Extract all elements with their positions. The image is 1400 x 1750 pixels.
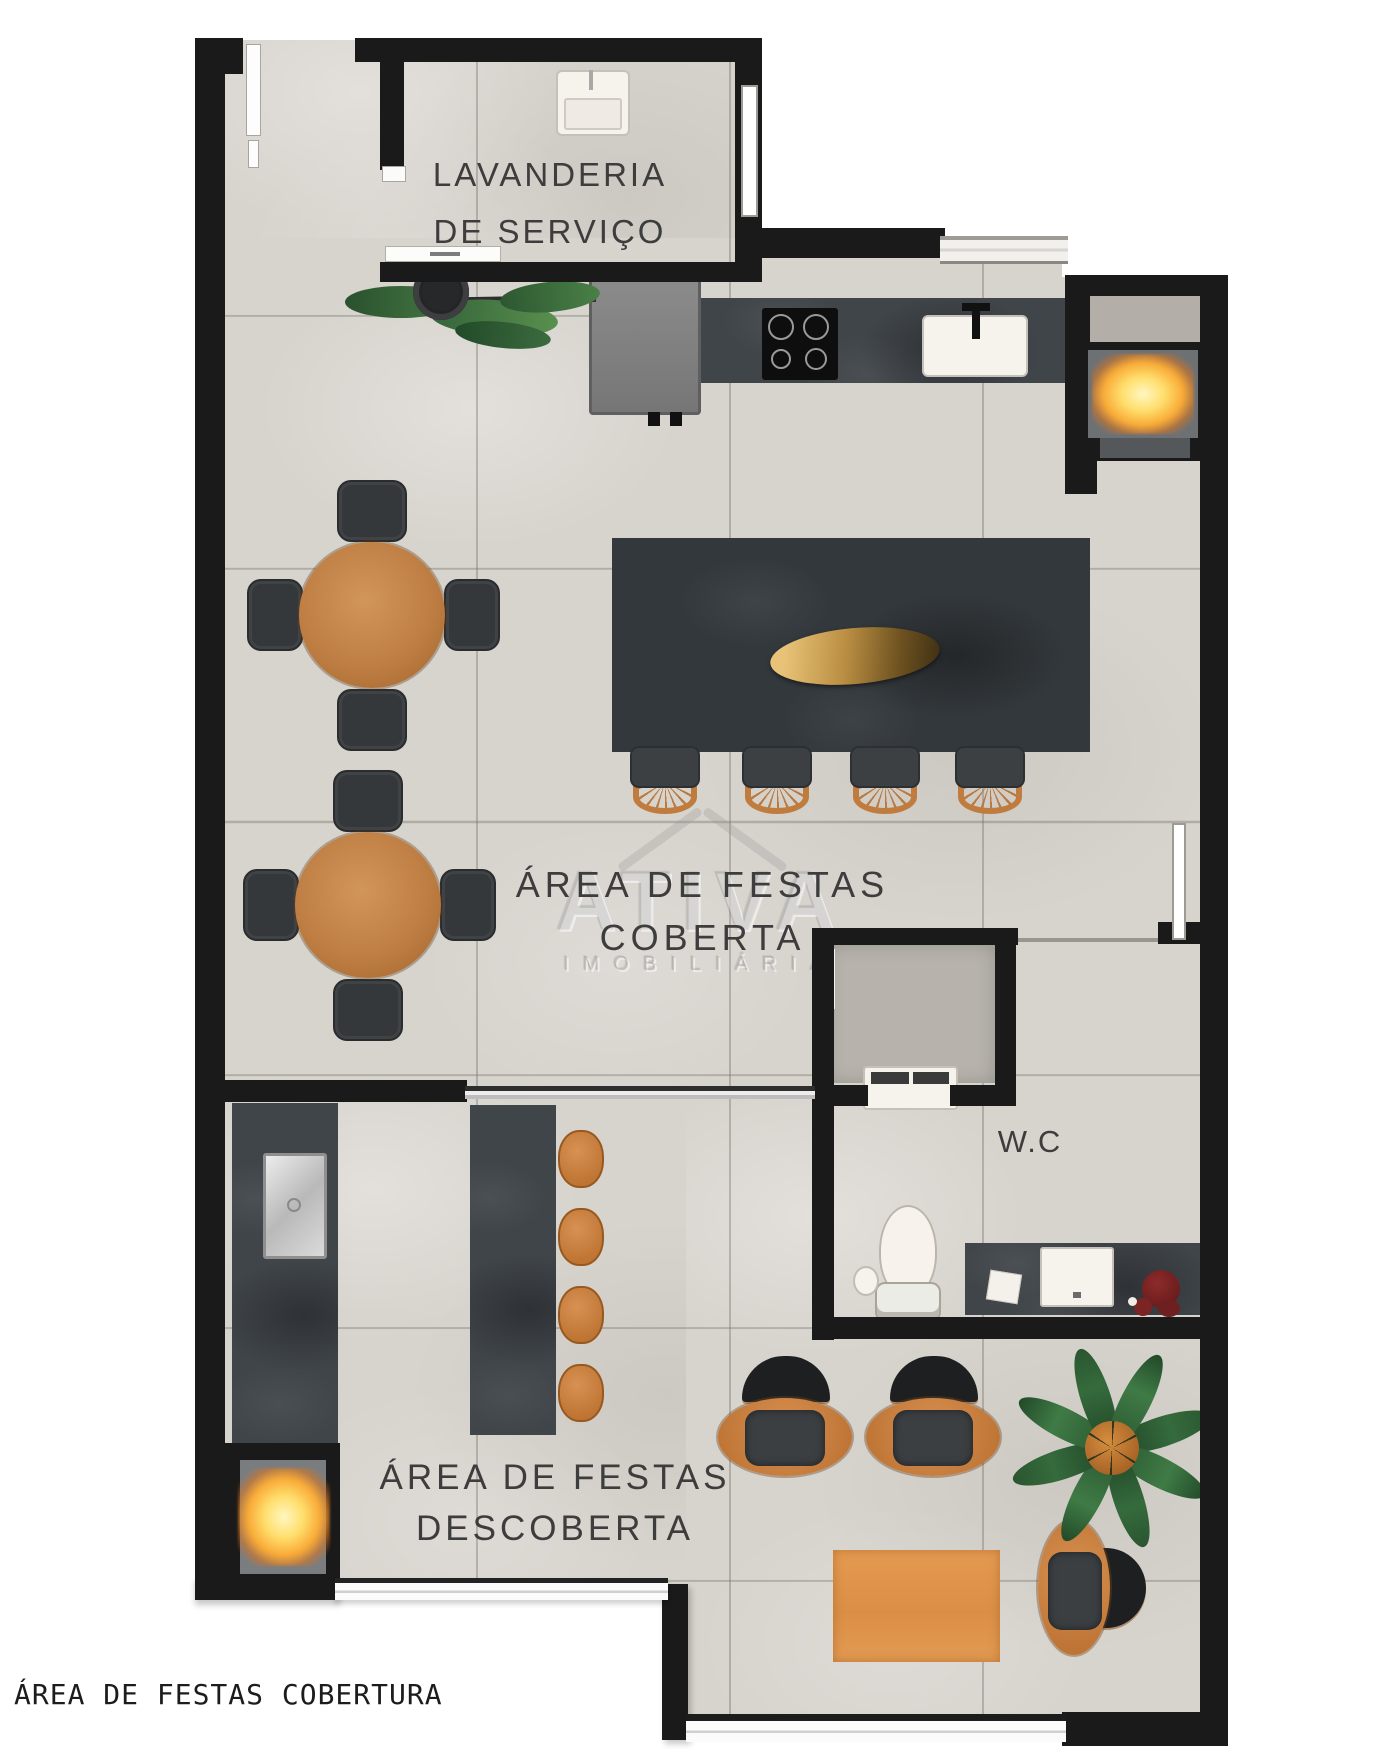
wall-top — [355, 38, 762, 62]
wall-shower-right — [995, 943, 1016, 1106]
wall-right — [1200, 275, 1228, 1735]
table-chair — [333, 979, 403, 1041]
wc-door-threshold — [1018, 938, 1160, 942]
laundry-label-line2: DE SERVIÇO — [385, 203, 715, 260]
toilet-tank — [875, 1282, 941, 1322]
island-chair — [625, 746, 705, 814]
bar-stool — [558, 1286, 604, 1344]
lounge-chair-seat — [745, 1410, 825, 1466]
uncovered-label-line2: DESCOBERTA — [355, 1503, 755, 1554]
entry-door-panel — [246, 44, 261, 136]
wall-wc-left — [812, 928, 834, 1340]
entry-door-panel — [248, 140, 259, 168]
uncovered-label-line1: ÁREA DE FESTAS — [355, 1452, 755, 1503]
toilet-paper — [853, 1266, 879, 1296]
chair-seat — [955, 746, 1025, 788]
chair-seat — [630, 746, 700, 788]
bottomleft-sliding-door — [335, 1578, 668, 1600]
burner — [803, 314, 829, 340]
laundry-window — [741, 85, 758, 217]
wall-wc-bottom — [812, 1317, 1202, 1339]
bar-stool — [558, 1208, 604, 1266]
vanity-faucet — [1073, 1292, 1081, 1298]
barbecue-shelf — [1090, 296, 1200, 342]
laundry-label-line1: LAVANDERIA — [385, 146, 715, 203]
lounge-chair-seat — [893, 1410, 973, 1466]
floorplan-page: ATIVA IMOBILIÁRIA — [0, 0, 1400, 1750]
room-label-laundry: LAVANDERIA DE SERVIÇO — [385, 146, 715, 260]
barbecue-lower-shelf — [1100, 438, 1190, 458]
refrigerator — [589, 278, 701, 415]
outside-top — [762, 15, 1240, 238]
wall-step — [662, 1584, 688, 1740]
mid-sliding-glass-door — [465, 1086, 815, 1099]
wall-shower-bottom-right — [950, 1085, 1016, 1106]
covered-label-line1: ÁREA DE FESTAS — [505, 858, 900, 911]
wall-kitchen-top — [762, 228, 945, 258]
outside-top-right — [1062, 225, 1240, 277]
kitchen-faucet-stem — [972, 303, 980, 339]
bar-counter — [470, 1105, 556, 1435]
laundry-faucet — [589, 70, 593, 90]
round-table — [299, 542, 445, 688]
chair-seat — [850, 746, 920, 788]
chair-seat — [742, 746, 812, 788]
table-chair — [247, 579, 303, 651]
table-chair — [337, 689, 407, 751]
wall-laundry-bottom — [380, 262, 762, 282]
table-chair — [243, 869, 299, 941]
fire-icon — [1092, 354, 1194, 434]
barbecue-frame-stub — [1065, 458, 1097, 494]
room-label-uncovered: ÁREA DE FESTAS DESCOBERTA — [355, 1452, 755, 1554]
bench-slat — [871, 1072, 909, 1084]
room-label-wc: W.C — [985, 1124, 1075, 1160]
bar-stool — [558, 1364, 604, 1422]
fire-icon — [238, 1468, 330, 1566]
vanity-sink — [1040, 1247, 1114, 1307]
burner — [805, 348, 827, 370]
wall-top-corner — [195, 38, 243, 74]
burner — [771, 349, 791, 369]
wall-bottom-right — [1062, 1712, 1228, 1746]
table-chair — [337, 480, 407, 542]
flower-decor-dot — [1128, 1297, 1137, 1306]
island-chair — [950, 746, 1030, 814]
island-chair — [737, 746, 817, 814]
bottomright-sliding-door — [686, 1714, 1066, 1742]
laundry-sink-basin — [564, 98, 622, 130]
burner — [768, 314, 794, 340]
wall-left — [195, 38, 225, 1598]
table-chair — [444, 579, 500, 651]
room-label-covered: ÁREA DE FESTAS COBERTA — [505, 858, 900, 964]
plant-pot-stems — [1085, 1421, 1139, 1475]
wall-mid-divider — [225, 1080, 467, 1102]
wall-bottom-left — [195, 1576, 340, 1600]
round-table — [295, 832, 441, 978]
kitchen-pass-window — [940, 236, 1068, 264]
bar-stool — [558, 1130, 604, 1188]
plan-caption: ÁREA DE FESTAS COBERTURA — [14, 1678, 574, 1711]
floor-plant — [1007, 1343, 1217, 1553]
soap-dish — [986, 1270, 1022, 1305]
flower-decor — [1158, 1300, 1180, 1317]
right-wall-window — [1172, 823, 1186, 940]
lounge-chair-seat — [1048, 1552, 1102, 1630]
steel-sink-drain — [287, 1198, 301, 1212]
table-chair — [440, 869, 496, 941]
table-chair — [333, 770, 403, 832]
shower-box — [827, 945, 995, 1083]
island-chair — [845, 746, 925, 814]
refrigerator-foot — [670, 412, 682, 426]
outside-bottom-left — [180, 1600, 672, 1750]
refrigerator-foot — [648, 412, 660, 426]
outdoor-rug — [833, 1550, 1000, 1662]
covered-label-line2: COBERTA — [505, 911, 900, 964]
wall-shower-bottom-left — [820, 1085, 868, 1106]
bench-slat — [913, 1072, 949, 1084]
